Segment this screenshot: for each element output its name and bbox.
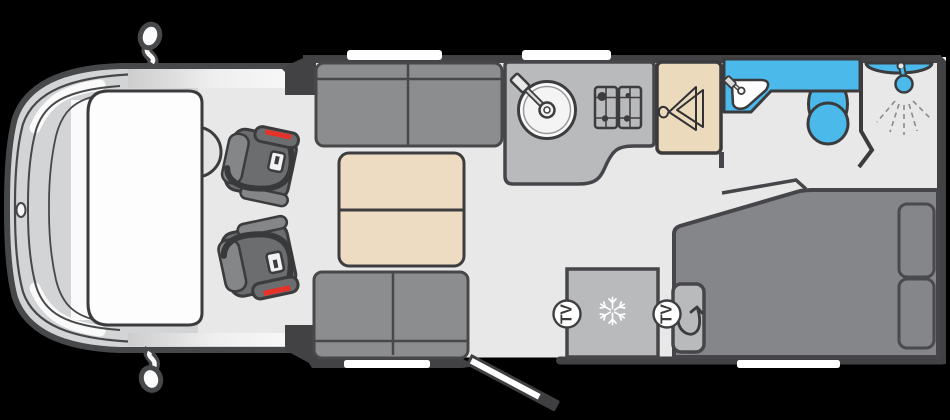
svg-text:TV: TV <box>659 303 676 323</box>
svg-text:TV: TV <box>559 303 576 323</box>
